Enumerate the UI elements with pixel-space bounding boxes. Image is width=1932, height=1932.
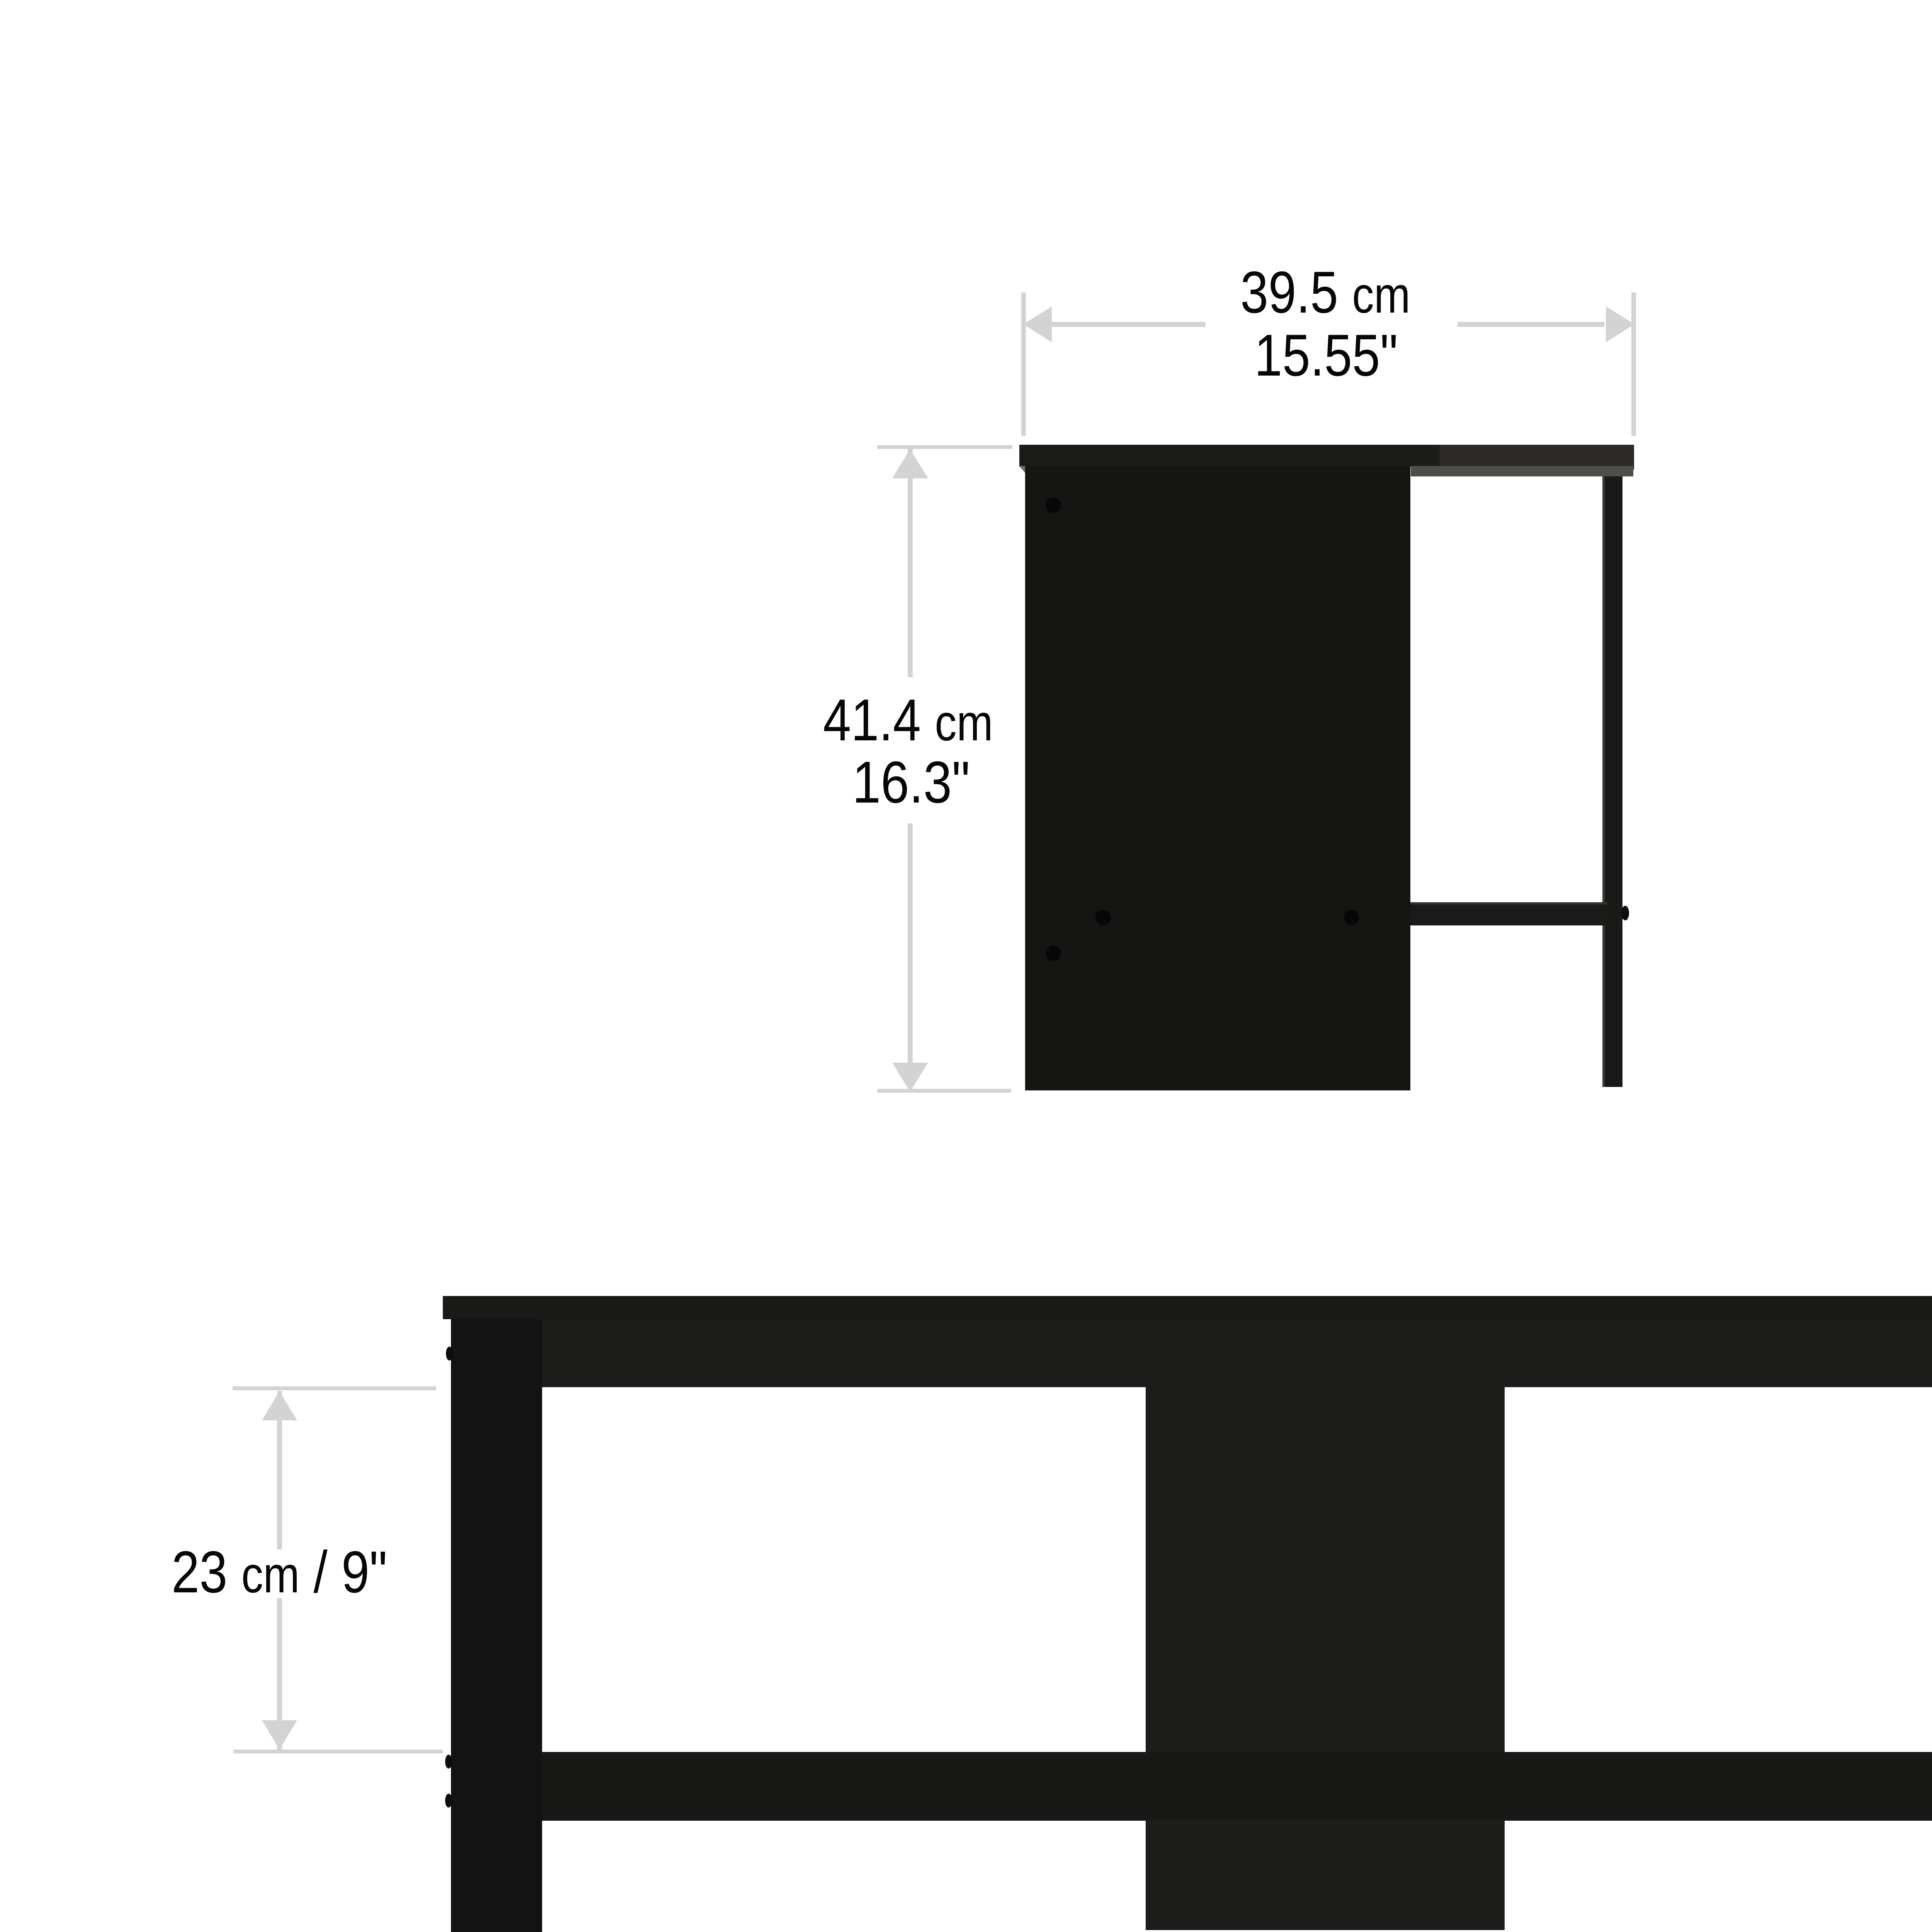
svg-text:15.55": 15.55" [1254, 322, 1398, 388]
svg-text:41.4 cm: 41.4 cm [823, 687, 993, 753]
svg-text:39.5 cm: 39.5 cm [1240, 259, 1410, 325]
svg-text:23 cm / 9": 23 cm / 9" [172, 1539, 387, 1605]
svg-text:16.3": 16.3" [852, 750, 970, 815]
